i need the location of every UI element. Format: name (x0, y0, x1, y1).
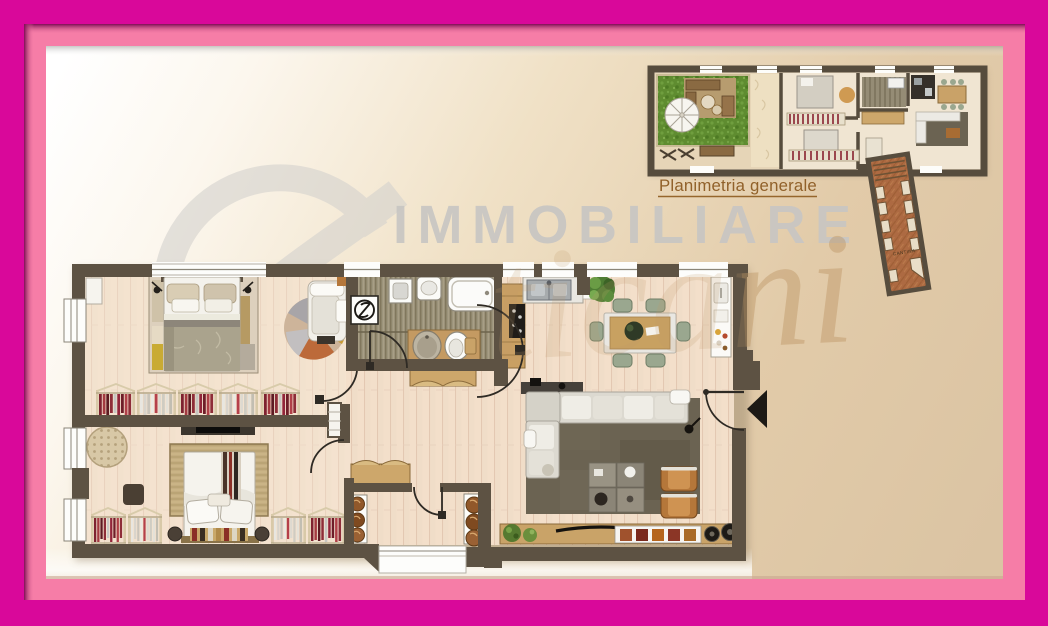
svg-text:Planimetria generale: Planimetria generale (659, 176, 817, 195)
